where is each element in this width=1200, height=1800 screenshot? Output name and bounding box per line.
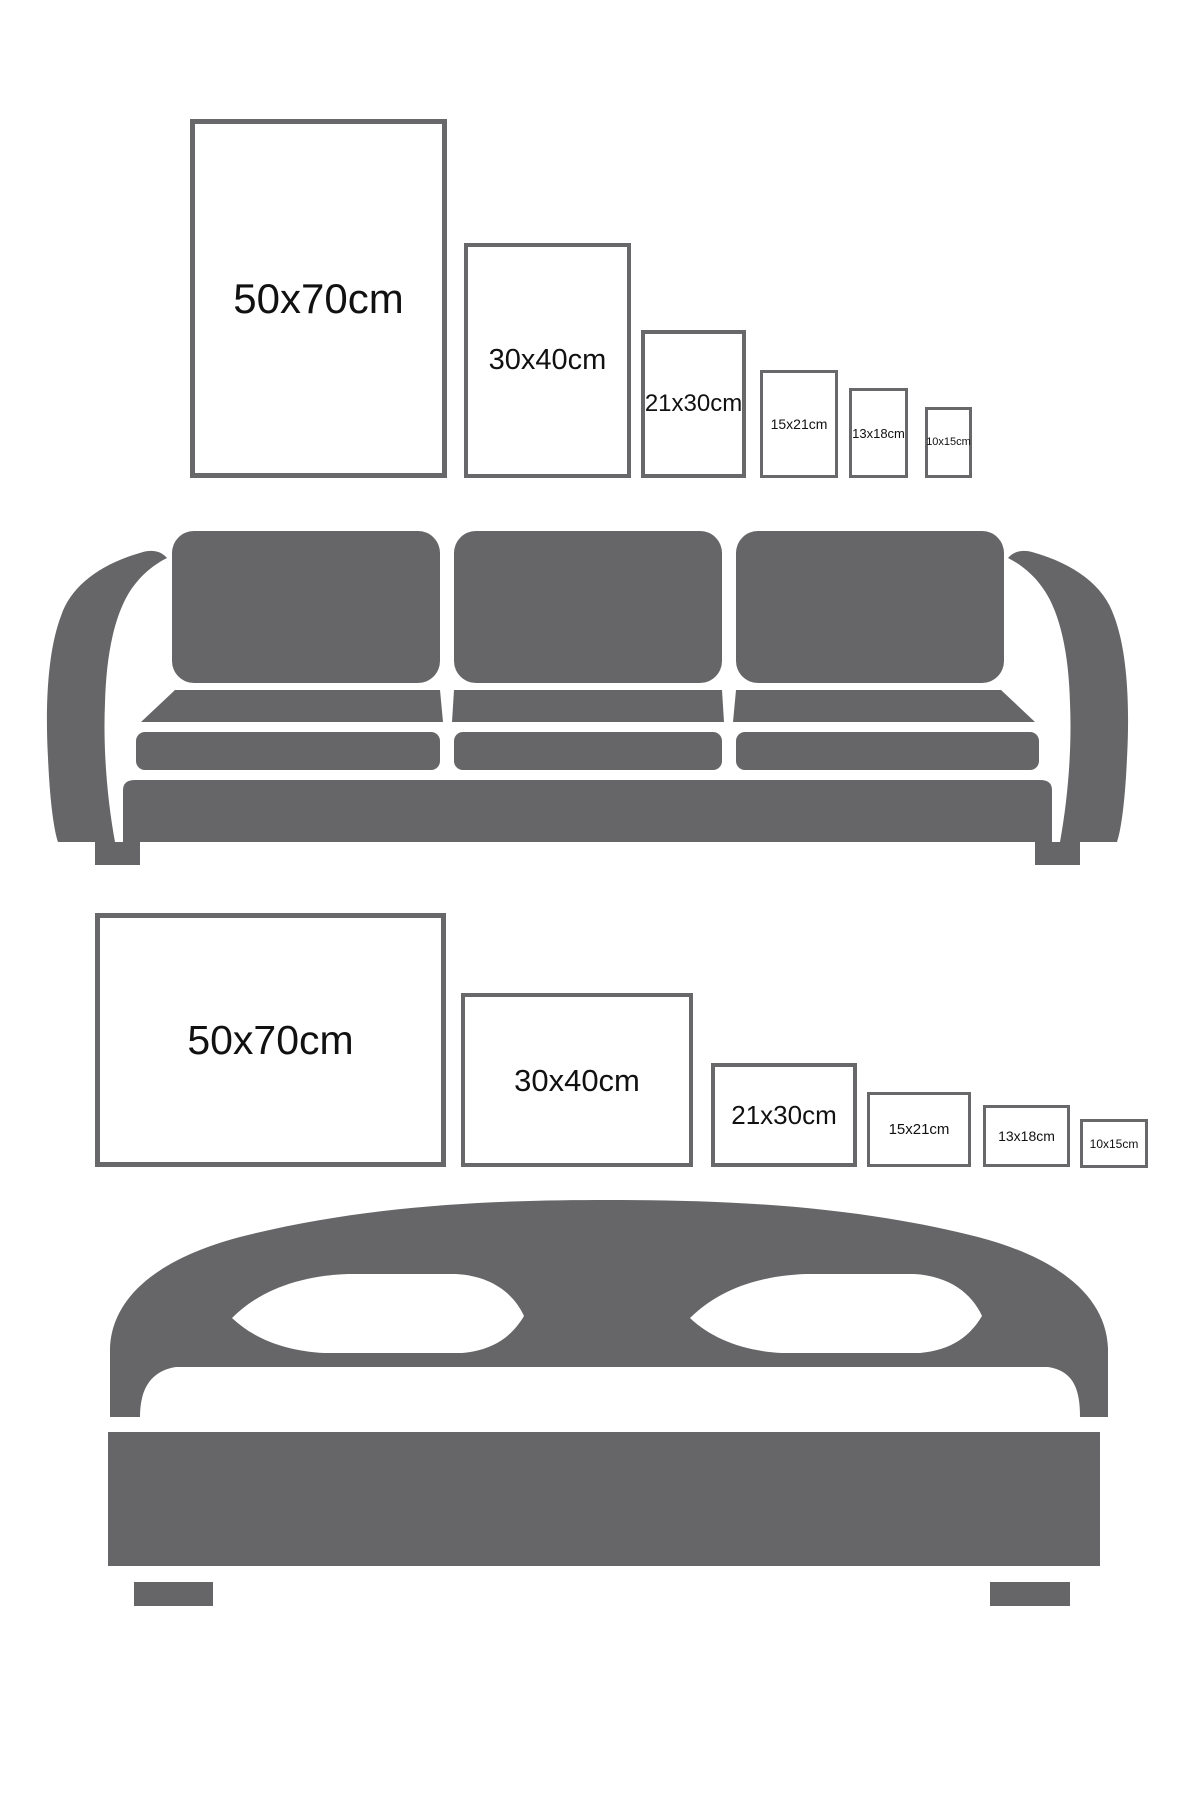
size-frame-21x30-landscape: 21x30cm [711, 1063, 857, 1167]
sofa-base [123, 780, 1052, 842]
sofa-front-panel [136, 732, 440, 770]
size-label: 10x15cm [926, 437, 971, 448]
sofa-back-cushion [736, 531, 1004, 683]
size-frame-30x40-portrait: 30x40cm [464, 243, 631, 478]
size-label: 21x30cm [731, 1102, 837, 1128]
size-frame-15x21-portrait: 15x21cm [760, 370, 838, 478]
bed-base [108, 1432, 1100, 1566]
size-label: 30x40cm [489, 346, 607, 375]
bed-icon [100, 1200, 1120, 1610]
size-label: 30x40cm [514, 1065, 640, 1096]
size-label: 10x15cm [1090, 1138, 1139, 1150]
size-frame-30x40-landscape: 30x40cm [461, 993, 693, 1167]
sofa-leg [1035, 842, 1080, 865]
size-label: 50x70cm [233, 278, 403, 320]
bed-leg [134, 1582, 213, 1606]
poster-size-guide: 50x70cm 30x40cm 21x30cm 15x21cm 13x18cm … [0, 0, 1200, 1800]
size-label: 21x30cm [645, 392, 742, 416]
sofa-seat-cushion [141, 690, 443, 722]
size-frame-10x15-portrait: 10x15cm [925, 407, 972, 478]
size-frame-13x18-portrait: 13x18cm [849, 388, 908, 478]
size-frame-21x30-portrait: 21x30cm [641, 330, 746, 478]
size-label: 15x21cm [771, 417, 828, 431]
size-frame-50x70-landscape: 50x70cm [95, 913, 446, 1167]
size-label: 13x18cm [852, 427, 905, 440]
size-frame-13x18-landscape: 13x18cm [983, 1105, 1070, 1167]
sofa-leg [95, 842, 140, 865]
sofa-back-cushion [454, 531, 722, 683]
sofa-icon [45, 488, 1130, 868]
size-label: 15x21cm [889, 1122, 950, 1137]
sofa-front-panel [454, 732, 722, 770]
sofa-front-panel [736, 732, 1039, 770]
sofa-seat-cushion [733, 690, 1035, 722]
size-label: 50x70cm [187, 1020, 353, 1061]
sofa-seat-cushion [452, 690, 724, 722]
size-label: 13x18cm [998, 1129, 1055, 1143]
size-frame-50x70-portrait: 50x70cm [190, 119, 447, 478]
size-frame-10x15-landscape: 10x15cm [1080, 1119, 1148, 1168]
size-frame-15x21-landscape: 15x21cm [867, 1092, 971, 1167]
sofa-back-cushion [172, 531, 440, 683]
bed-leg [990, 1582, 1070, 1606]
